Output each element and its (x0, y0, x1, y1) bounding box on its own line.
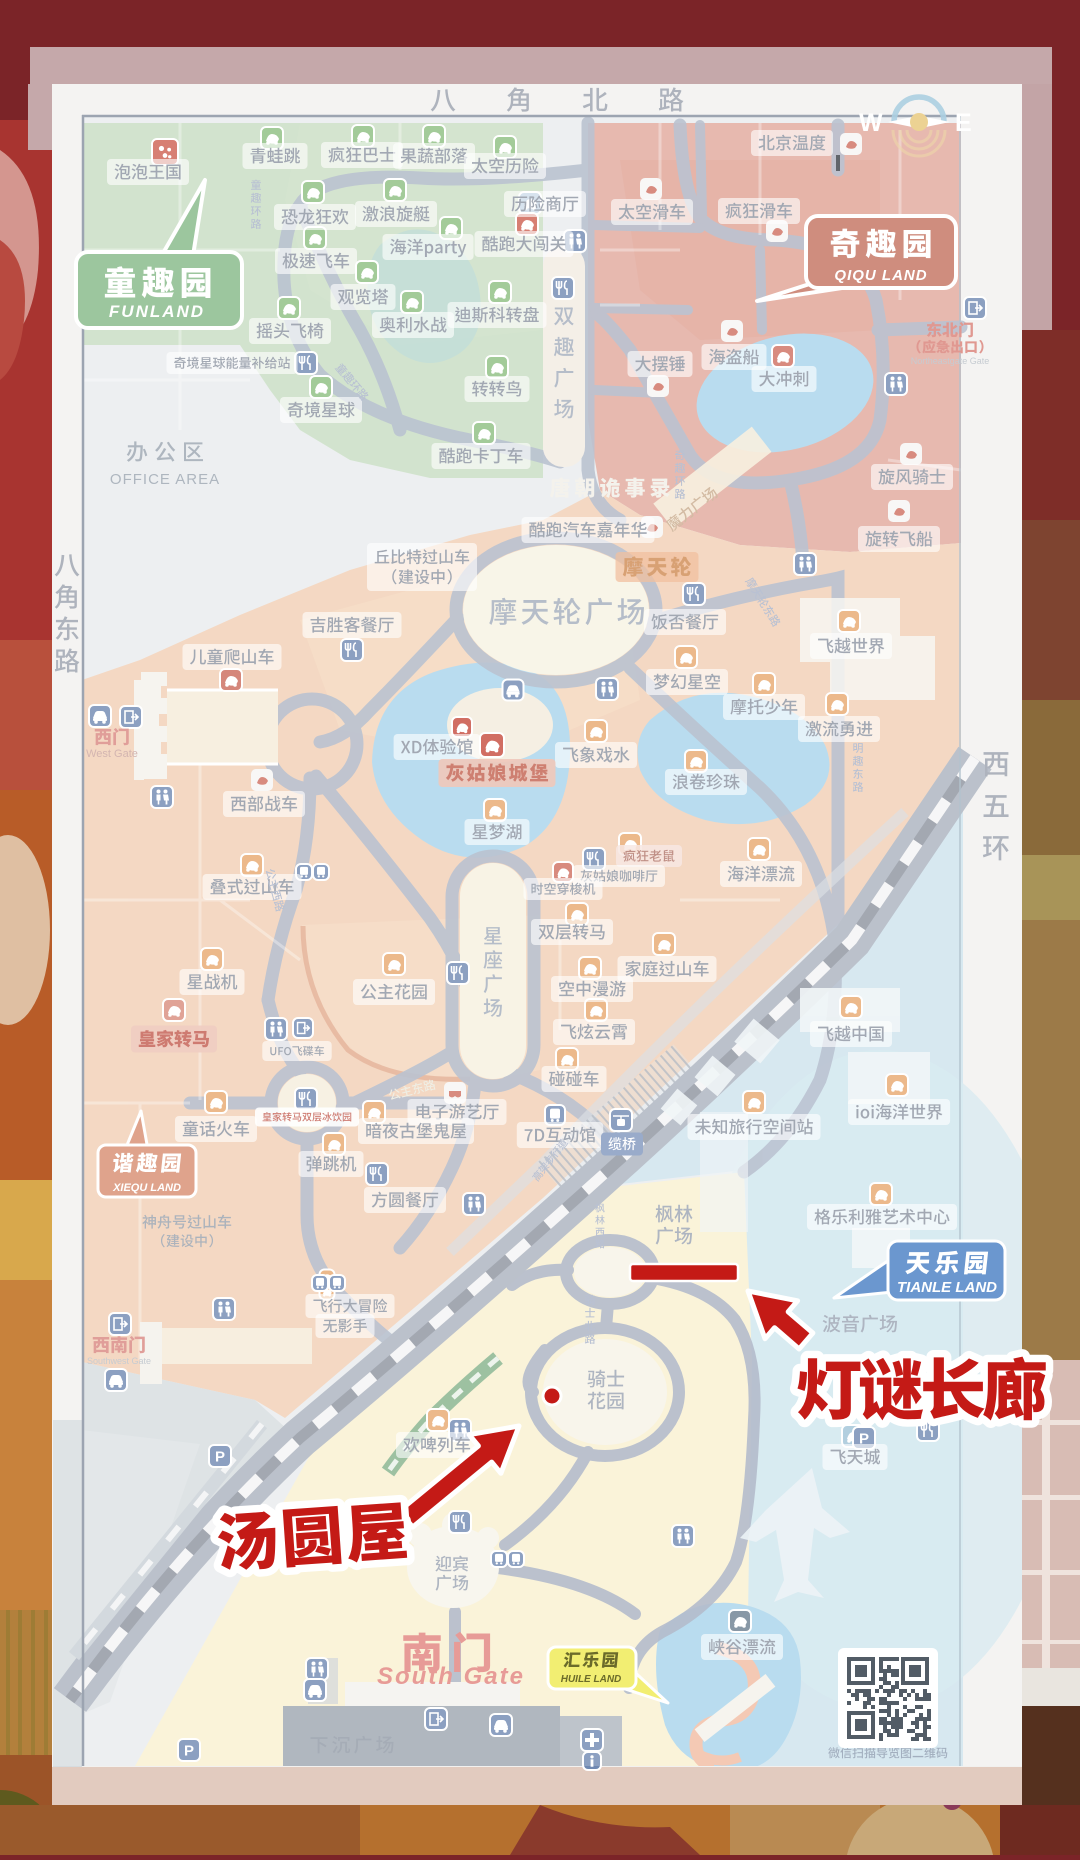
svg-text:XIEQU LAND: XIEQU LAND (112, 1182, 181, 1194)
svg-text:TIANLE LAND: TIANLE LAND (897, 1279, 997, 1296)
svg-text:FUNLAND: FUNLAND (109, 302, 205, 321)
svg-text:HUILE LAND: HUILE LAND (561, 1674, 622, 1685)
svg-text:QIQU LAND: QIQU LAND (834, 267, 927, 284)
